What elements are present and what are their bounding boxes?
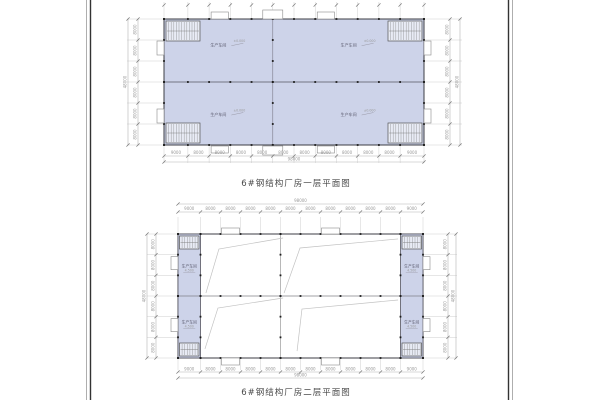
column-dot <box>380 295 382 297</box>
column-dot <box>251 18 253 20</box>
column-dot <box>240 295 242 297</box>
column-dot <box>400 274 402 276</box>
column-dot <box>163 60 165 62</box>
dim-label: 8000 <box>245 206 256 211</box>
column-dot <box>272 81 274 83</box>
column-dot <box>400 254 402 256</box>
dim-label: 8000 <box>151 239 156 250</box>
canopy <box>317 12 334 19</box>
column-dot <box>423 60 425 62</box>
room-label: 生产车间 <box>210 111 226 117</box>
level-mark: 4.500 <box>185 269 194 273</box>
column-dot <box>422 295 424 297</box>
column-dot <box>220 233 222 235</box>
column-dot <box>272 39 274 41</box>
dim-label: 8000 <box>205 206 216 211</box>
dim-label: 8000 <box>285 206 296 211</box>
column-dot <box>260 357 262 359</box>
column-dot <box>357 81 359 83</box>
column-dot <box>177 336 179 338</box>
column-dot <box>229 144 231 146</box>
room-label: 生产车间 <box>341 111 357 117</box>
column-dot <box>272 144 274 146</box>
canopy <box>222 358 240 365</box>
dim-label: 8000 <box>385 206 396 211</box>
column-dot <box>280 295 282 297</box>
column-dot <box>422 274 424 276</box>
dim-label: 8000 <box>205 367 216 372</box>
column-dot <box>200 233 202 235</box>
column-dot <box>177 233 179 235</box>
column-dot <box>163 18 165 20</box>
column-dot <box>200 336 202 338</box>
column-dot <box>423 39 425 41</box>
dim-label: 8000 <box>443 321 448 332</box>
column-dot <box>177 254 179 256</box>
side-platform <box>171 257 178 270</box>
column-dot <box>293 18 295 20</box>
dim-label: 8000 <box>215 150 226 155</box>
column-dot <box>378 144 380 146</box>
column-dot <box>314 144 316 146</box>
column-dot <box>200 295 202 297</box>
column-dot <box>187 144 189 146</box>
dim-label: 48000 <box>451 289 456 302</box>
column-dot <box>177 357 179 359</box>
column-dot <box>378 81 380 83</box>
canopy <box>322 228 340 234</box>
column-dot <box>229 81 231 83</box>
column-dot <box>177 316 179 318</box>
column-dot <box>272 102 274 104</box>
dim-label: 98000 <box>294 198 307 203</box>
column-dot <box>200 357 202 359</box>
side-platform <box>424 109 431 123</box>
column-dot <box>300 295 302 297</box>
column-dot <box>280 274 282 276</box>
column-dot <box>336 81 338 83</box>
column-dot <box>422 254 424 256</box>
dim-label: 8000 <box>443 301 448 312</box>
dim-label: 9000 <box>407 206 418 211</box>
canopy <box>211 12 228 19</box>
column-dot <box>163 123 165 125</box>
dim-label: 8000 <box>443 239 448 250</box>
drawing-sheet: 生产车间±0.000生产车间±0.000生产车间±0.000生产车间±0.000… <box>0 0 600 400</box>
column-dot <box>336 144 338 146</box>
dim-label: 8000 <box>445 108 450 119</box>
column-dot <box>423 102 425 104</box>
column-dot <box>240 233 242 235</box>
level-mark: 4.500 <box>407 269 416 273</box>
dim-label: 8000 <box>151 280 156 291</box>
column-dot <box>208 144 210 146</box>
side-platform <box>171 319 178 332</box>
column-dot <box>399 81 401 83</box>
column-dot <box>360 295 362 297</box>
side-platform <box>157 109 164 123</box>
dim-label: 8000 <box>300 150 311 155</box>
side-platform <box>157 41 164 55</box>
dim-label: 8000 <box>443 342 448 353</box>
column-dot <box>272 60 274 62</box>
dim-label: 8000 <box>133 24 138 35</box>
column-dot <box>314 18 316 20</box>
column-dot <box>280 254 282 256</box>
column-dot <box>177 274 179 276</box>
column-dot <box>187 81 189 83</box>
column-dot <box>360 233 362 235</box>
column-dot <box>240 357 242 359</box>
dim-label: 8000 <box>443 280 448 291</box>
column-dot <box>320 357 322 359</box>
column-dot <box>208 18 210 20</box>
column-dot <box>423 81 425 83</box>
canopy-center <box>263 10 283 19</box>
dim-label: 8000 <box>385 367 396 372</box>
column-dot <box>260 233 262 235</box>
column-dot <box>200 254 202 256</box>
dim-label: 8000 <box>193 150 204 155</box>
column-dot <box>422 316 424 318</box>
dim-label: 98000 <box>288 157 301 162</box>
column-dot <box>280 357 282 359</box>
dim-label: 8000 <box>305 367 316 372</box>
dim-label: 8000 <box>285 367 296 372</box>
dim-label: 9000 <box>184 367 195 372</box>
column-dot <box>272 123 274 125</box>
dim-label: 9000 <box>407 150 418 155</box>
column-dot <box>220 357 222 359</box>
column-dot <box>251 81 253 83</box>
column-dot <box>163 39 165 41</box>
dim-label: 8000 <box>305 206 316 211</box>
column-dot <box>423 144 425 146</box>
plan1-title: 6#钢结构厂房一层平面图 <box>146 177 446 189</box>
column-dot <box>400 233 402 235</box>
dim-label: 8000 <box>445 87 450 98</box>
dim-label: 9000 <box>184 206 195 211</box>
level-mark: 4.500 <box>185 324 194 328</box>
dim-label: 8000 <box>133 87 138 98</box>
dim-label: 48000 <box>142 289 147 302</box>
column-dot <box>422 233 424 235</box>
dim-label: 48000 <box>455 75 460 88</box>
column-dot <box>163 144 165 146</box>
dim-label: 8000 <box>151 301 156 312</box>
dim-label: 8000 <box>265 367 276 372</box>
dim-label: 8000 <box>133 129 138 140</box>
column-dot <box>422 357 424 359</box>
column-dot <box>320 233 322 235</box>
dim-label: 8000 <box>151 259 156 270</box>
column-dot <box>280 316 282 318</box>
level-mark: ±0.000 <box>233 39 245 43</box>
dim-label: 8000 <box>365 206 376 211</box>
column-dot <box>280 233 282 235</box>
column-dot <box>399 144 401 146</box>
column-dot <box>320 295 322 297</box>
column-dot <box>400 295 402 297</box>
level-mark: ±0.000 <box>364 109 376 113</box>
dim-label: 8000 <box>278 150 289 155</box>
column-dot <box>200 274 202 276</box>
room-label: 生产车间 <box>210 42 226 48</box>
column-dot <box>280 336 282 338</box>
side-platform <box>424 41 431 55</box>
column-dot <box>357 18 359 20</box>
column-dot <box>300 357 302 359</box>
dim-label: 8000 <box>445 66 450 77</box>
dim-label: 8000 <box>445 45 450 56</box>
column-dot <box>423 18 425 20</box>
side-platform <box>423 257 430 270</box>
level-mark: ±0.000 <box>233 109 245 113</box>
column-dot <box>293 81 295 83</box>
dim-label: 8000 <box>363 150 374 155</box>
plan2-title: 6#钢结构厂房二层平面图 <box>146 386 446 398</box>
column-dot <box>360 357 362 359</box>
column-dot <box>400 316 402 318</box>
canopy <box>322 358 340 365</box>
dim-label: 8000 <box>257 150 268 155</box>
column-dot <box>293 144 295 146</box>
dim-label: 8000 <box>321 150 332 155</box>
dim-label: 8000 <box>325 367 336 372</box>
column-dot <box>423 123 425 125</box>
canopy <box>222 228 240 234</box>
dim-label: 8000 <box>245 367 256 372</box>
column-dot <box>340 295 342 297</box>
dim-label: 8000 <box>151 342 156 353</box>
room-label: 生产车间 <box>341 42 357 48</box>
level-mark: 4.500 <box>407 324 416 328</box>
dim-label: 8000 <box>445 129 450 140</box>
dim-label: 8000 <box>133 45 138 56</box>
column-dot <box>340 357 342 359</box>
plan2-second-floor: 生产车间4.500生产车间4.500生产车间4.500生产车间4.5009800… <box>142 198 458 380</box>
column-dot <box>314 81 316 83</box>
column-dot <box>251 144 253 146</box>
dim-label: 8000 <box>345 367 356 372</box>
column-dot <box>300 233 302 235</box>
dim-label: 8000 <box>325 206 336 211</box>
dim-label: 8000 <box>384 150 395 155</box>
dim-label: 8000 <box>342 150 353 155</box>
dim-label: 8000 <box>225 367 236 372</box>
dim-label: 98000 <box>294 373 307 378</box>
column-dot <box>163 81 165 83</box>
dim-label: 8000 <box>345 206 356 211</box>
dim-label: 8000 <box>151 321 156 332</box>
column-dot <box>163 102 165 104</box>
column-dot <box>340 233 342 235</box>
column-dot <box>380 233 382 235</box>
column-dot <box>357 144 359 146</box>
column-dot <box>229 18 231 20</box>
column-dot <box>177 295 179 297</box>
dim-label: 48000 <box>123 75 128 88</box>
dim-label: 8000 <box>443 259 448 270</box>
dim-label: 8000 <box>133 108 138 119</box>
column-dot <box>187 18 189 20</box>
column-dot <box>400 336 402 338</box>
dim-label: 9000 <box>171 150 182 155</box>
dim-label: 8000 <box>225 206 236 211</box>
column-dot <box>220 295 222 297</box>
dim-label: 8000 <box>365 367 376 372</box>
dim-label: 8000 <box>265 206 276 211</box>
column-dot <box>399 18 401 20</box>
column-dot <box>260 295 262 297</box>
level-mark: ±0.000 <box>364 39 376 43</box>
side-platform <box>423 319 430 332</box>
column-dot <box>336 18 338 20</box>
dim-label: 8000 <box>236 150 247 155</box>
column-dot <box>400 357 402 359</box>
column-dot <box>200 316 202 318</box>
dim-label: 8000 <box>445 24 450 35</box>
floor-plan-canvas: 生产车间±0.000生产车间±0.000生产车间±0.000生产车间±0.000… <box>0 0 600 400</box>
dim-label: 9000 <box>407 367 418 372</box>
column-dot <box>208 81 210 83</box>
plan1-first-floor: 生产车间±0.000生产车间±0.000生产车间±0.000生产车间±0.000… <box>123 2 463 164</box>
column-dot <box>380 357 382 359</box>
column-dot <box>378 18 380 20</box>
column-dot <box>422 336 424 338</box>
dim-label: 8000 <box>133 66 138 77</box>
